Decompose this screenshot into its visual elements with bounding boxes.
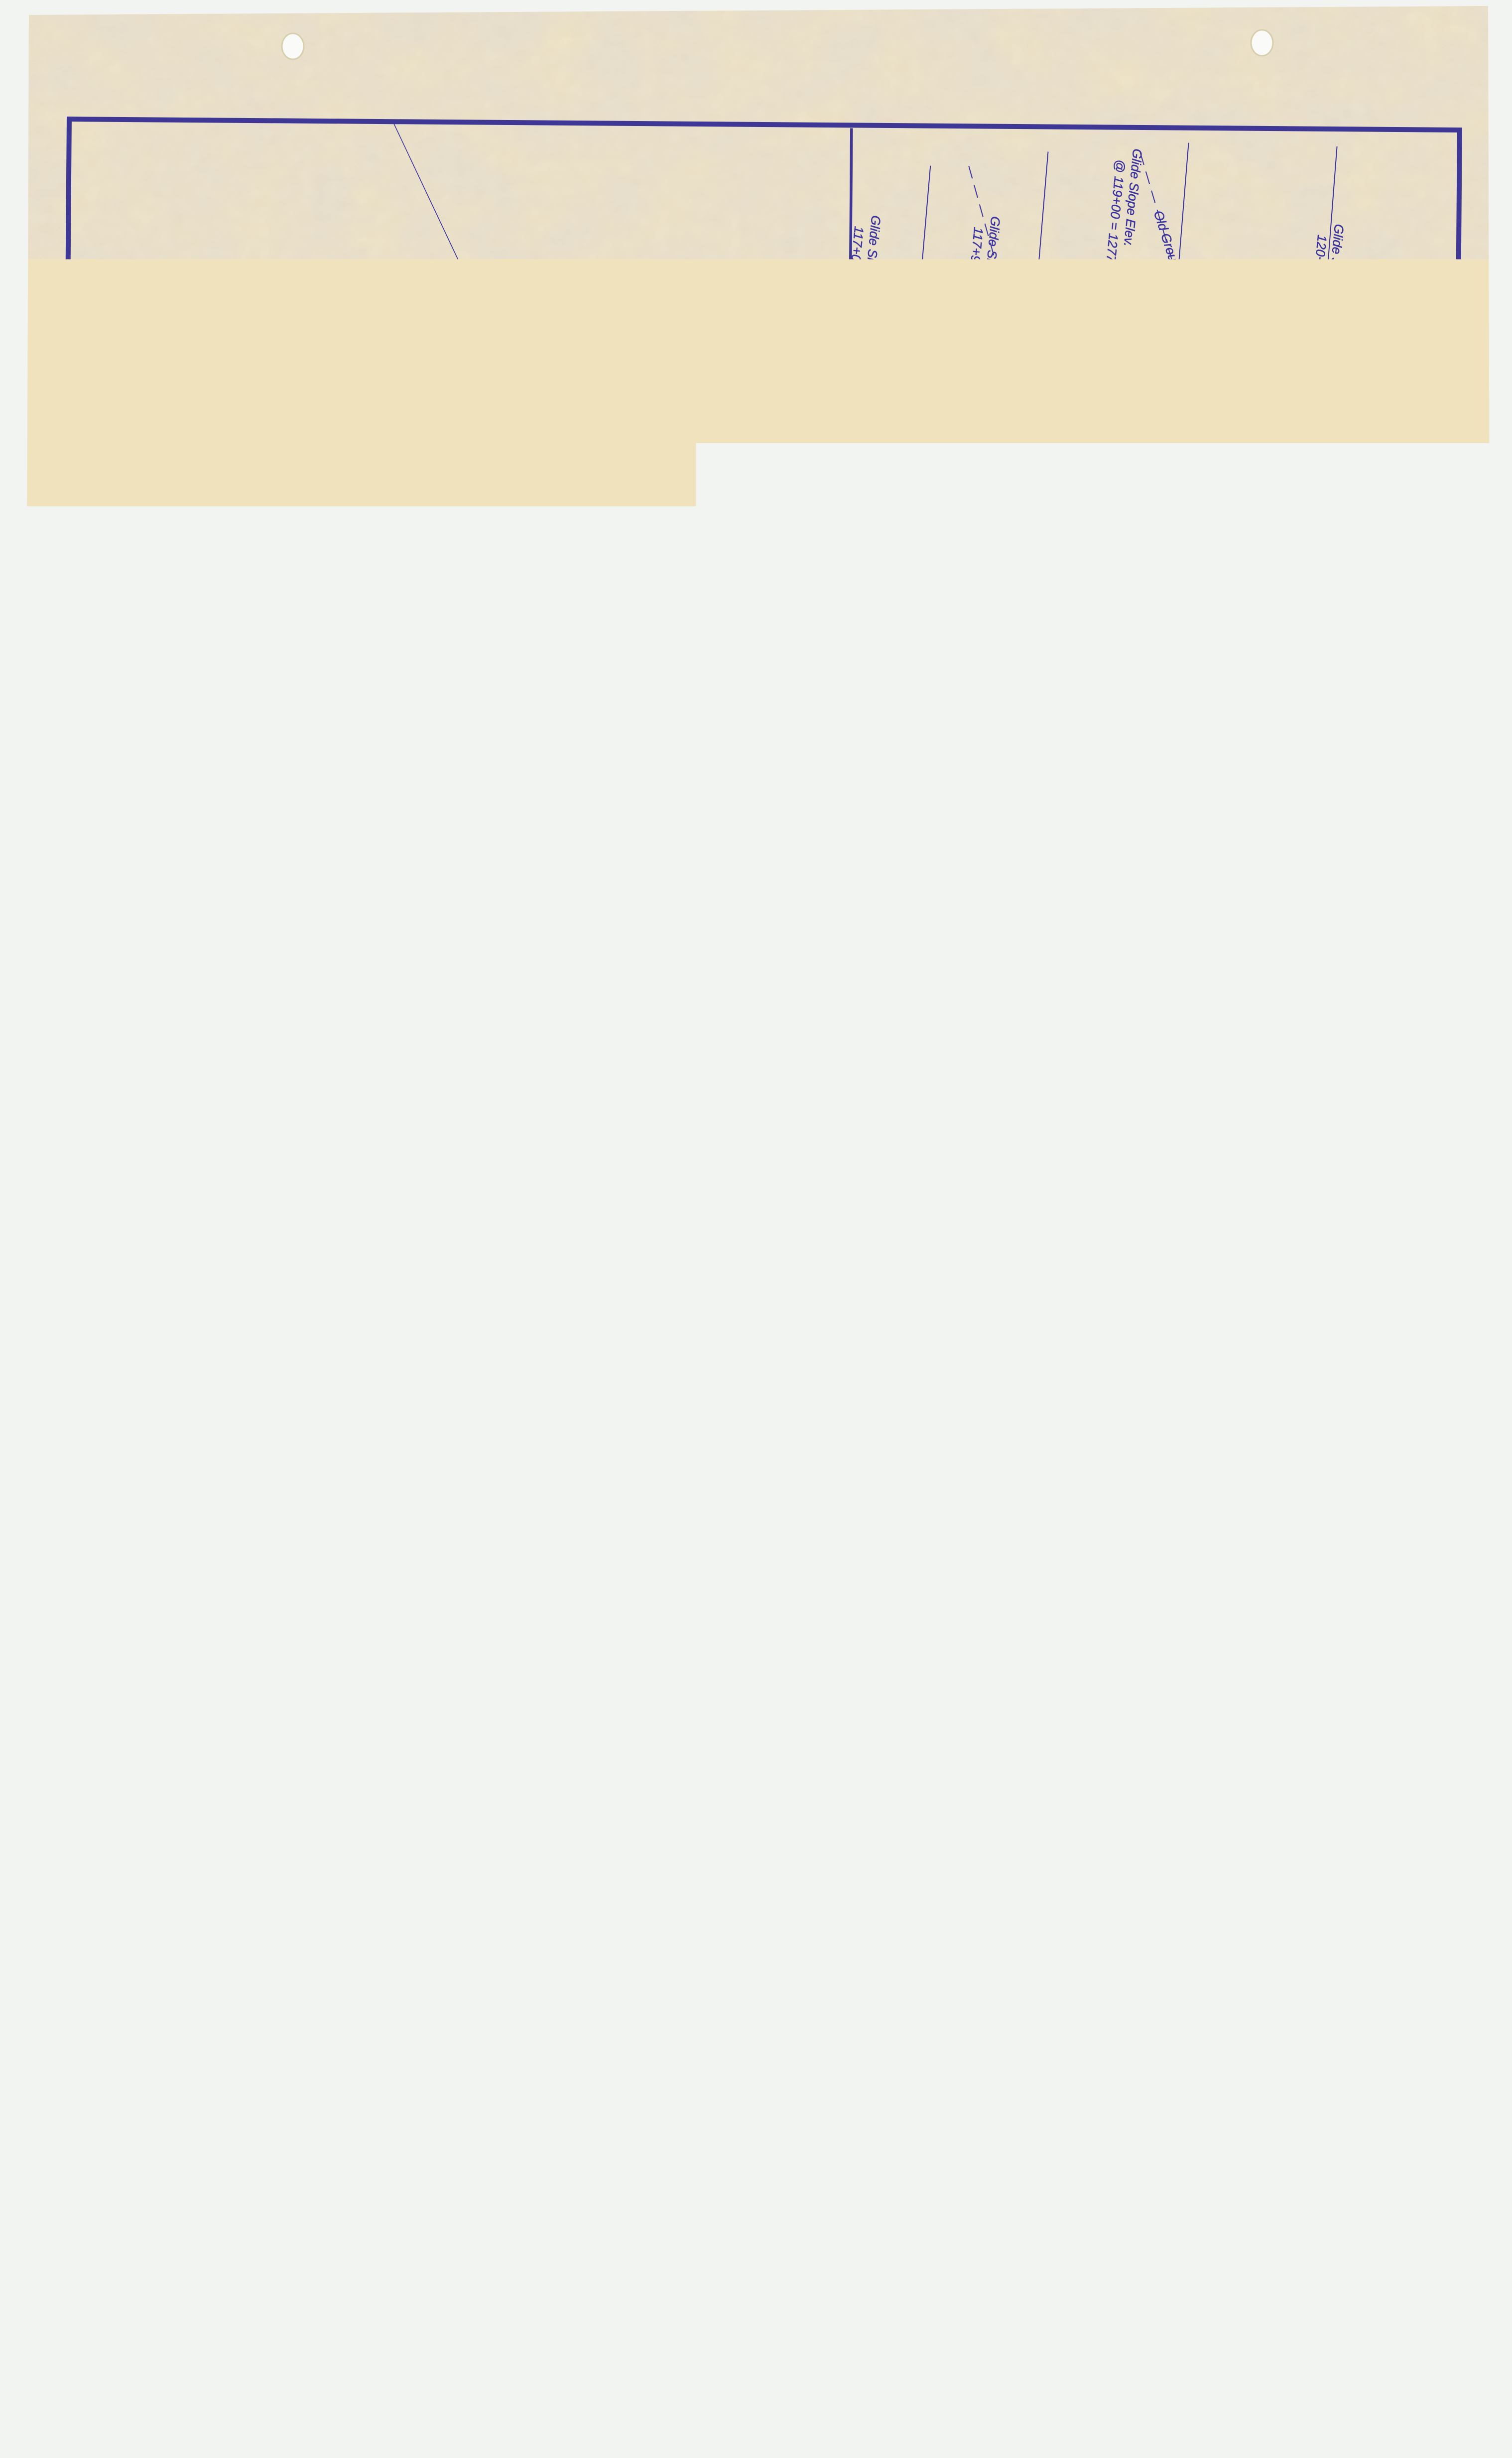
- svg-text:V.O. LEACH: V.O. LEACH: [85, 2082, 99, 2150]
- svg-text:TO BE REMOVED: TO BE REMOVED: [809, 923, 829, 1072]
- svg-text:0: 0: [117, 1174, 131, 1181]
- svg-text:L: L: [957, 1472, 970, 1479]
- svg-text:Right Hand Edge: Right Hand Edge: [1249, 825, 1263, 920]
- svg-text:Dated:: Dated:: [127, 1839, 138, 1870]
- svg-text:PROPERTY LINE: PROPERTY LINE: [417, 1711, 433, 1814]
- svg-text:LEGEND: LEGEND: [462, 1677, 483, 1752]
- svg-text:B.R.L.: B.R.L.: [389, 1663, 400, 1690]
- svg-text:EXISTING BUILDINGS: EXISTING BUILDINGS: [434, 1711, 450, 1845]
- svg-text:300: 300: [117, 1244, 130, 1265]
- svg-text:Sta. 117+90: Sta. 117+90: [992, 825, 1008, 897]
- svg-text:20:1 GLIDE SLOPE: 20:1 GLIDE SLOPE: [1384, 318, 1418, 597]
- svg-text:300: 300: [118, 1100, 131, 1121]
- svg-text:GROUND PROTUDING INTO: GROUND PROTUDING INTO: [1416, 285, 1451, 637]
- svg-text:Sta. 120+00: Sta. 120+00: [1278, 805, 1293, 878]
- svg-text:South: South: [1217, 845, 1232, 878]
- svg-text:DRAWN BY: RJK: DRAWN BY: RJK: [58, 2248, 70, 2348]
- svg-text:VERMONT AGENCY OF TRANSPORT: VERMONT AGENCY OF TRANSPORTATION: [112, 2092, 128, 2371]
- svg-text:DRAWING: DRAWING: [65, 2084, 77, 2139]
- svg-text:900: 900: [116, 1381, 129, 1402]
- svg-text:1500': 1500': [850, 995, 867, 1029]
- svg-text:ADAP PROJECT NO. 6-50-0001-04: ADAP PROJECT NO. 6-50-0001-04: [268, 2093, 287, 2365]
- svg-text:P: P: [425, 1663, 436, 1670]
- svg-text:600: 600: [116, 1315, 130, 1336]
- svg-text:of Approach to: of Approach to: [1233, 835, 1247, 915]
- svg-text:AREA TO BE EXCAVATED: AREA TO BE EXCAVATED: [1079, 492, 1095, 652]
- svg-text:L: L: [413, 1666, 424, 1672]
- svg-text:GENERAL PLAN: GENERAL PLAN: [162, 2159, 189, 2304]
- svg-text:SCALE IN FEET: SCALE IN FEET: [155, 1211, 173, 1323]
- svg-text:Sta. 119+00: Sta. 119+00: [1134, 820, 1149, 892]
- svg-text:1200: 1200: [115, 1445, 129, 1473]
- svg-text:SCALE: 1″= 20': SCALE: 1″= 20': [1355, 409, 1372, 498]
- svg-text:CONTRACTOR'S ACCESS AND HAUL R: CONTRACTOR'S ACCESS AND HAUL ROADS: [359, 1710, 376, 1987]
- svg-text:STATE AIRPORT: STATE AIRPORT: [203, 2106, 231, 2286]
- svg-text:BUILDING RESTRICTION LINE: BUILDING RESTRICTION LINE: [384, 1710, 401, 1896]
- svg-text:AIRPORT ENGINEER: AIRPORT ENGINEER: [83, 2246, 98, 2365]
- svg-text:NO. 3 OF 17: NO. 3 OF 17: [43, 2151, 59, 2222]
- svg-text:P: P: [970, 1468, 983, 1476]
